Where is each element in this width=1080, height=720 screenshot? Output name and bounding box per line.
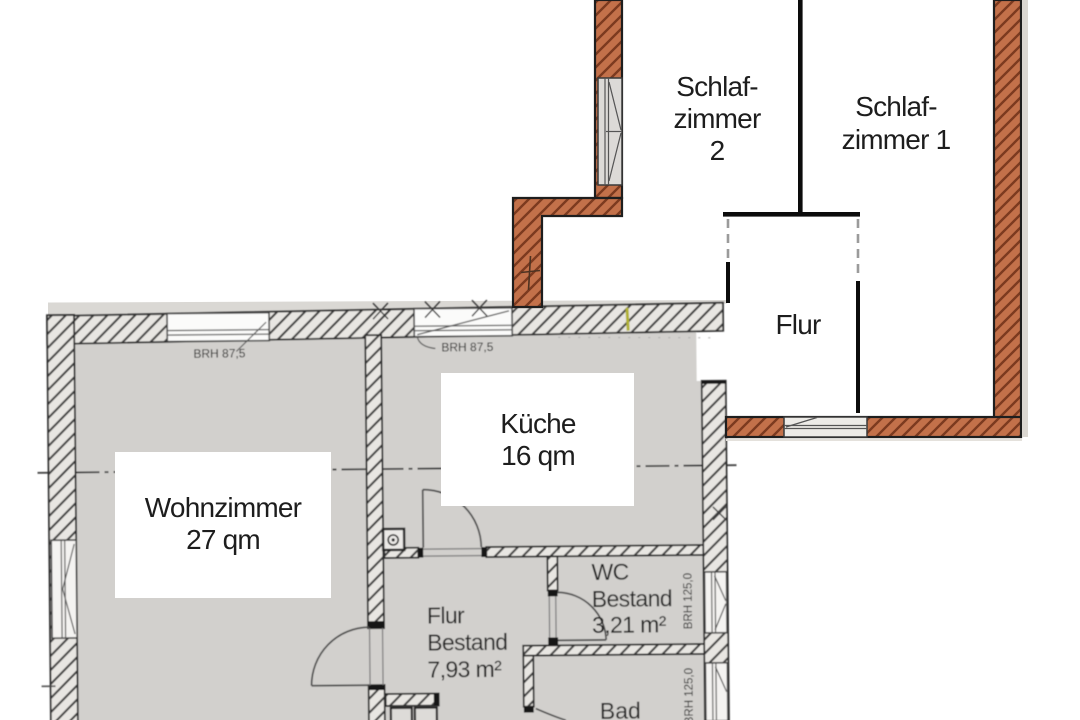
- svg-text:Flur: Flur: [427, 602, 465, 628]
- svg-text:BRH 125,0: BRH 125,0: [683, 573, 696, 629]
- svg-text:zimmer 1: zimmer 1: [842, 124, 951, 155]
- svg-text:WC: WC: [591, 559, 628, 585]
- svg-text:Bad: Bad: [600, 698, 641, 720]
- svg-text:Küche: Küche: [500, 408, 576, 439]
- svg-text:zimmer: zimmer: [674, 103, 761, 134]
- svg-text:BRH 87,5: BRH 87,5: [193, 346, 245, 361]
- svg-text:Bestand: Bestand: [592, 585, 672, 612]
- svg-text:Flur: Flur: [775, 309, 820, 340]
- svg-text:3,21 m²: 3,21 m²: [592, 611, 667, 638]
- svg-text:Schlaf-: Schlaf-: [855, 91, 937, 122]
- svg-text:16 qm: 16 qm: [501, 440, 575, 471]
- svg-text:Schlaf-: Schlaf-: [676, 71, 758, 102]
- svg-text:2: 2: [710, 135, 725, 166]
- svg-text:BRH 125,0: BRH 125,0: [683, 668, 696, 720]
- svg-text:27 qm: 27 qm: [186, 524, 260, 555]
- svg-text:Bestand: Bestand: [427, 629, 507, 656]
- svg-text:7,93 m²: 7,93 m²: [427, 656, 502, 683]
- svg-text:Wohnzimmer: Wohnzimmer: [145, 492, 302, 523]
- svg-text:BRH 87,5: BRH 87,5: [441, 340, 493, 355]
